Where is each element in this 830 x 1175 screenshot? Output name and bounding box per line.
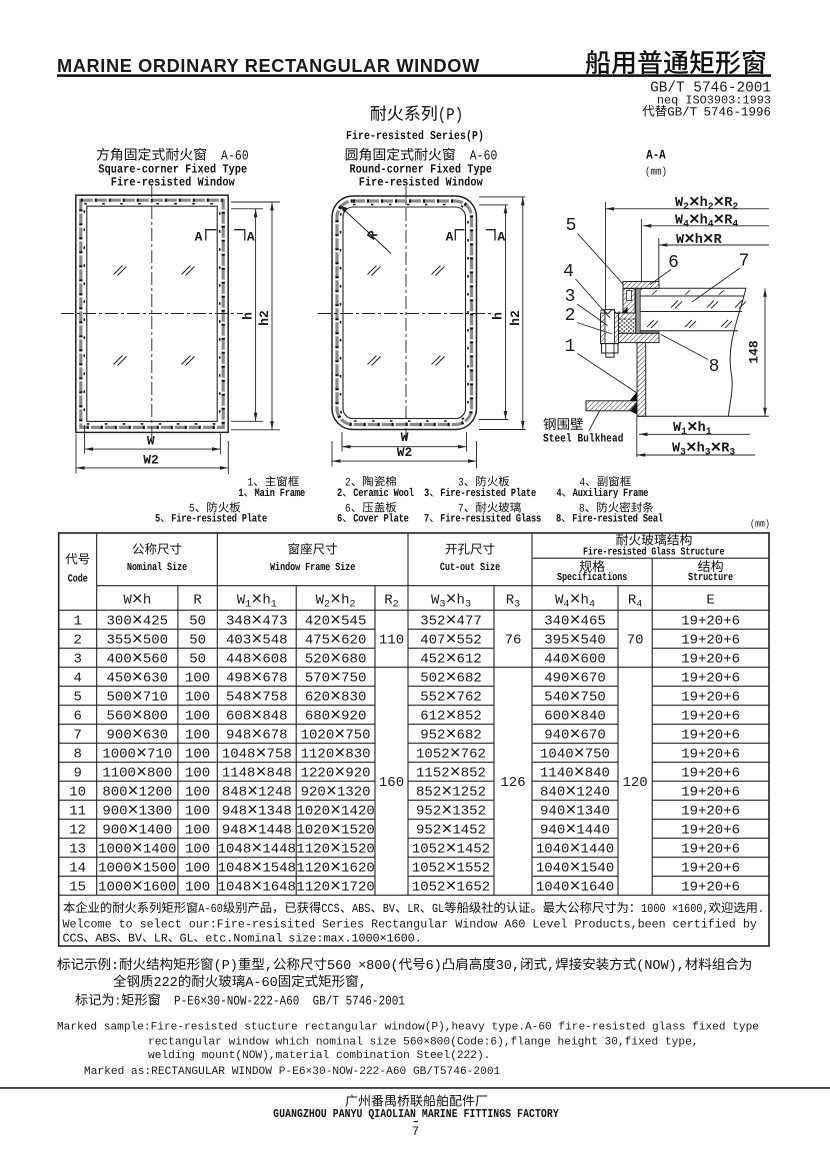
svg-text:7: 7 [412,1125,420,1139]
svg-text:520×680: 520×680 [305,649,367,670]
svg-text:7: 7 [73,728,81,744]
svg-text:14: 14 [69,861,86,877]
svg-text:12: 12 [69,823,86,839]
svg-text:W2: W2 [143,453,159,468]
svg-text:100: 100 [185,785,210,801]
svg-text:6: 6 [73,709,81,725]
svg-text:1120×1620: 1120×1620 [296,858,374,879]
svg-text:403×548: 403×548 [226,630,288,651]
svg-text:19+20+6: 19+20+6 [681,709,740,725]
svg-text:800×1200: 800×1200 [102,782,172,803]
svg-text:3: 3 [565,287,576,307]
svg-text:15: 15 [69,880,86,896]
svg-text:352×477: 352×477 [420,611,482,632]
svg-text:100: 100 [185,747,210,763]
svg-text:10: 10 [69,785,86,801]
svg-text:100: 100 [185,690,210,706]
svg-text:2: 2 [565,306,576,326]
svg-text:W: W [147,434,155,449]
svg-text:1052×1652: 1052×1652 [412,877,490,898]
svg-text:1048×1648: 1048×1648 [218,877,296,898]
svg-text:19+20+6: 19+20+6 [681,614,740,630]
svg-text:500×710: 500×710 [107,687,169,708]
svg-text:E: E [706,593,714,609]
svg-text:19+20+6: 19+20+6 [681,690,740,706]
svg-text:A: A [446,230,454,245]
svg-text:4: 4 [73,671,81,687]
svg-text:490×670: 490×670 [544,668,606,689]
svg-text:welding mount(NOW),material co: welding mount(NOW),material combination … [148,1050,490,1062]
svg-text:W×h: W×h [123,590,151,611]
svg-text:948×1448: 948×1448 [222,820,292,841]
svg-text:W: W [401,430,409,445]
svg-text:1040×750: 1040×750 [540,744,610,765]
svg-text:1152×852: 1152×852 [416,763,486,784]
svg-text:8: 8 [73,747,81,763]
svg-text:400×560: 400×560 [107,649,169,670]
svg-text:8: 8 [709,357,720,377]
svg-text:A: A [497,230,505,245]
svg-text:548×758: 548×758 [226,687,288,708]
svg-text:11: 11 [69,804,86,820]
svg-text:1220×920: 1220×920 [301,763,371,784]
svg-text:h: h [241,312,256,320]
svg-text:340×465: 340×465 [544,611,606,632]
svg-text:1048×1548: 1048×1548 [218,858,296,879]
svg-text:76: 76 [505,633,522,649]
svg-text:MARINE ORDINARY RECTANGULAR WI: MARINE ORDINARY RECTANGULAR WINDOW [57,56,480,76]
svg-text:940×1340: 940×1340 [540,801,610,822]
svg-text:540×750: 540×750 [544,687,606,708]
svg-text:348×473: 348×473 [226,611,288,632]
svg-text:560×800: 560×800 [107,706,169,727]
svg-text:475×620: 475×620 [305,630,367,651]
svg-text:100: 100 [185,671,210,687]
svg-text:50: 50 [189,652,206,668]
svg-text:100: 100 [185,880,210,896]
svg-text:502×682: 502×682 [420,668,482,689]
svg-text:h: h [490,312,505,320]
svg-text:W2: W2 [397,445,413,460]
svg-text:160: 160 [379,775,404,791]
svg-text:1052×762: 1052×762 [416,744,486,765]
svg-text:1100×800: 1100×800 [102,763,172,784]
svg-text:1020×1420: 1020×1420 [296,801,374,822]
svg-text:2: 2 [73,633,81,649]
svg-text:848×1248: 848×1248 [222,782,292,803]
svg-text:300×425: 300×425 [107,611,169,632]
svg-text:1120×1520: 1120×1520 [296,839,374,860]
svg-text:1000×1500: 1000×1500 [98,858,176,879]
svg-text:100: 100 [185,842,210,858]
svg-text:A: A [247,230,255,245]
svg-text:420×545: 420×545 [305,611,367,632]
svg-text:1040×1640: 1040×1640 [536,877,614,898]
svg-text:100: 100 [185,766,210,782]
svg-text:948×678: 948×678 [226,725,288,746]
svg-text:1120×1720: 1120×1720 [296,877,374,898]
svg-text:19+20+6: 19+20+6 [681,861,740,877]
svg-text:W×h×R: W×h×R [676,230,723,250]
svg-text:neq ISO3903:1993: neq ISO3903:1993 [657,94,771,108]
svg-text:19+20+6: 19+20+6 [681,804,740,820]
svg-text:148: 148 [747,340,762,364]
svg-text:1: 1 [565,337,576,357]
svg-text:19+20+6: 19+20+6 [681,652,740,668]
svg-text:940×1440: 940×1440 [540,820,610,841]
svg-text:498×678: 498×678 [226,668,288,689]
svg-text:A: A [195,230,203,245]
svg-text:440×600: 440×600 [544,649,606,670]
svg-text:900×1400: 900×1400 [102,820,172,841]
svg-text:600×840: 600×840 [544,706,606,727]
svg-text:1040×1540: 1040×1540 [536,858,614,879]
svg-text:1020×750: 1020×750 [301,725,371,746]
svg-text:7: 7 [739,252,750,272]
svg-text:920×1320: 920×1320 [301,782,371,803]
svg-text:Marked as:RECTANGULAR WINDOW: Marked as:RECTANGULAR WINDOW P-E6×30-NOW… [84,1066,501,1078]
svg-text:Marked sample:Fire-resisted st: Marked sample:Fire-resisted stucture rec… [57,1022,759,1034]
svg-text:R: R [193,593,202,609]
svg-text:13: 13 [69,842,86,858]
svg-text:680×920: 680×920 [305,706,367,727]
svg-text:952×1452: 952×1452 [416,820,486,841]
svg-text:19+20+6: 19+20+6 [681,747,740,763]
svg-text:19+20+6: 19+20+6 [681,785,740,801]
svg-text:9: 9 [73,766,81,782]
svg-text:1048×1448: 1048×1448 [218,839,296,860]
svg-text:h2: h2 [257,310,272,326]
svg-text:612×852: 612×852 [420,706,482,727]
svg-text:5: 5 [73,690,81,706]
svg-text:1120×830: 1120×830 [301,744,371,765]
svg-text:395×540: 395×540 [544,630,606,651]
svg-text:19+20+6: 19+20+6 [681,880,740,896]
svg-text:1000×710: 1000×710 [102,744,172,765]
svg-text:19+20+6: 19+20+6 [681,823,740,839]
svg-text:608×848: 608×848 [226,706,288,727]
svg-text:1000×1400: 1000×1400 [98,839,176,860]
svg-text:570×750: 570×750 [305,668,367,689]
svg-text:900×630: 900×630 [107,725,169,746]
svg-text:1148×848: 1148×848 [222,763,292,784]
svg-text:19+20+6: 19+20+6 [681,842,740,858]
svg-text:100: 100 [185,709,210,725]
svg-text:900×1300: 900×1300 [102,801,172,822]
svg-text:19+20+6: 19+20+6 [681,633,740,649]
svg-text:948×1348: 948×1348 [222,801,292,822]
svg-text:120: 120 [622,775,647,791]
svg-text:1: 1 [73,614,81,630]
svg-text:448×608: 448×608 [226,649,288,670]
svg-text:852×1252: 852×1252 [416,782,486,803]
svg-text:4: 4 [563,262,574,282]
svg-text:50: 50 [189,614,206,630]
svg-text:100: 100 [185,861,210,877]
svg-text:126: 126 [500,775,525,791]
svg-text:3: 3 [73,652,81,668]
svg-text:1048×758: 1048×758 [222,744,292,765]
svg-text:5: 5 [566,216,577,236]
svg-text:840×1240: 840×1240 [540,782,610,803]
svg-text:100: 100 [185,728,210,744]
svg-text:100: 100 [185,823,210,839]
svg-text:450×630: 450×630 [107,668,169,689]
svg-text:940×670: 940×670 [544,725,606,746]
svg-text:19+20+6: 19+20+6 [681,766,740,782]
svg-text:355×500: 355×500 [107,630,169,651]
svg-text:452×612: 452×612 [420,649,482,670]
svg-text:1000×1600: 1000×1600 [98,877,176,898]
svg-text:110: 110 [379,633,404,649]
svg-text:1040×1440: 1040×1440 [536,839,614,860]
svg-text:952×682: 952×682 [420,725,482,746]
svg-text:407×552: 407×552 [420,630,482,651]
svg-text:Welcome to select our:Fire-res: Welcome to select our:Fire-resisited Ser… [63,918,757,932]
svg-text:1140×840: 1140×840 [540,763,610,784]
svg-text:19+20+6: 19+20+6 [681,671,740,687]
svg-text:1020×1520: 1020×1520 [296,820,374,841]
svg-text:70: 70 [627,633,644,649]
svg-text:50: 50 [189,633,206,649]
svg-text:620×830: 620×830 [305,687,367,708]
svg-text:552×762: 552×762 [420,687,482,708]
svg-text:1052×1552: 1052×1552 [412,858,490,879]
svg-text:h2: h2 [508,310,523,326]
svg-text:19+20+6: 19+20+6 [681,728,740,744]
svg-text:952×1352: 952×1352 [416,801,486,822]
svg-text:100: 100 [185,804,210,820]
svg-text:rectangular window which nomin: rectangular window which nominal size 56… [148,1037,699,1049]
svg-text:1052×1452: 1052×1452 [412,839,490,860]
